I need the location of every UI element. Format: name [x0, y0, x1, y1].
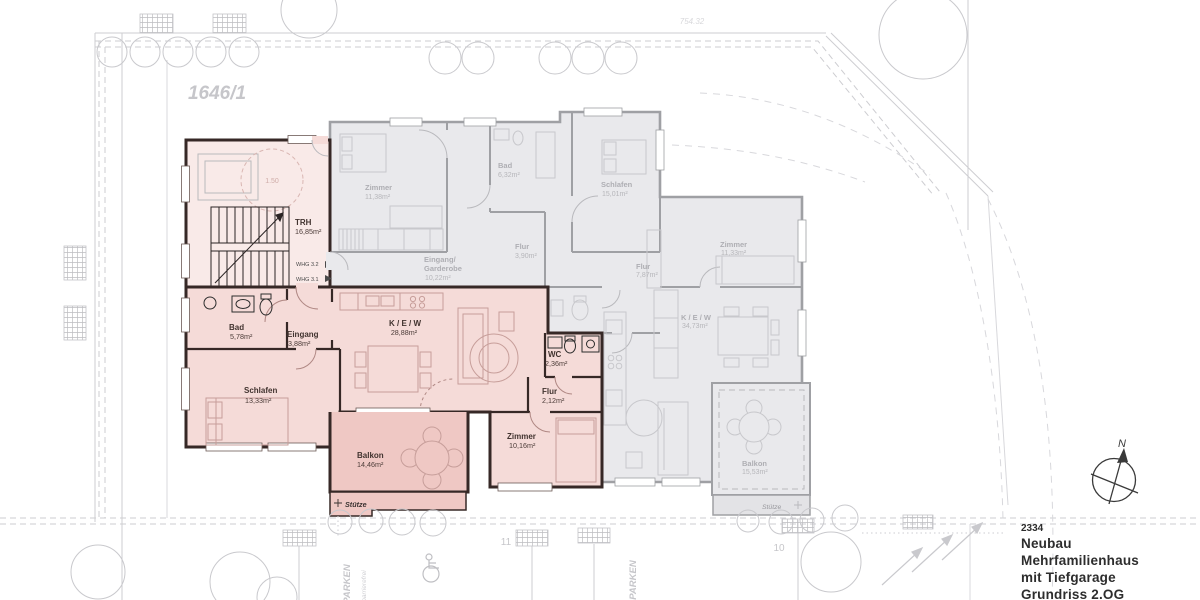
- svg-text:3,88m²: 3,88m²: [288, 339, 311, 348]
- ramp-arrows: [882, 523, 982, 585]
- svg-text:10,16m²: 10,16m²: [509, 441, 536, 450]
- room-label-zimmer-right: Zimmer: [720, 240, 747, 249]
- turning-circle-label: 1.50: [265, 178, 279, 185]
- title-block: 2334 Neubau Mehrfamilienhaus mit Tiefgar…: [1021, 523, 1139, 600]
- planter-box: [140, 14, 173, 33]
- room-label-bad-top: Bad: [498, 161, 513, 170]
- room-label-zimmer: Zimmer: [507, 432, 536, 441]
- room-label-eingang-top: Eingang/: [424, 255, 457, 264]
- svg-text:2,12m²: 2,12m²: [542, 396, 565, 405]
- title-line-1: Neubau: [1021, 536, 1072, 551]
- planter-box: [213, 14, 246, 33]
- support-label-pink: Stütze: [345, 500, 367, 509]
- title-line-3: mit Tiefgarage: [1021, 570, 1116, 585]
- pink-balcony: Stütze: [330, 412, 468, 538]
- room-label-flur-right: Flur: [636, 262, 650, 271]
- svg-text:11,38m²: 11,38m²: [365, 194, 391, 201]
- room-label-kew: K / E / W: [389, 319, 421, 328]
- room-label-wc: WC: [548, 350, 562, 359]
- plot-number: 1646/1: [188, 83, 246, 104]
- tree-icons-top: [97, 0, 967, 79]
- room-label-zimmer-top: Zimmer: [365, 183, 392, 192]
- room-label-schlafen: Schlafen: [244, 386, 277, 395]
- project-number: 2334: [1021, 523, 1044, 534]
- svg-text:3,90m²: 3,90m²: [515, 253, 537, 260]
- svg-text:28,88m²: 28,88m²: [391, 328, 418, 337]
- svg-text:6,32m²: 6,32m²: [498, 172, 520, 179]
- title-line-4: Grundriss 2.OG: [1021, 587, 1124, 600]
- room-label-trh: TRH: [295, 218, 312, 227]
- planter-box: [64, 306, 86, 340]
- svg-text:34,73m²: 34,73m²: [682, 323, 708, 330]
- svg-text:15,53m²: 15,53m²: [742, 469, 768, 476]
- room-label-balkon: Balkon: [357, 451, 384, 460]
- floor-plan-drawing: 1646/1 754.32 1: [0, 0, 1200, 600]
- door-label-whg31: WHG 3.1: [296, 277, 319, 283]
- svg-text:2,36m²: 2,36m²: [545, 359, 568, 368]
- svg-text:11,33m²: 11,33m²: [721, 250, 747, 257]
- room-label-flur-top: Flur: [515, 242, 529, 251]
- svg-text:13,33m²: 13,33m²: [245, 396, 272, 405]
- svg-text:16,85m²: 16,85m²: [295, 227, 322, 236]
- stall-number-10: 10: [773, 543, 785, 554]
- room-label-eingang: Eingang: [287, 330, 319, 339]
- stall-number-11: 11: [501, 537, 512, 548]
- svg-text:15,01m²: 15,01m²: [602, 191, 628, 198]
- tree-icons-bottom: [71, 505, 861, 600]
- wheelchair-icon: [423, 554, 439, 582]
- compass-north-label: N: [1118, 438, 1126, 450]
- door-label-whg32: WHG 3.2: [296, 262, 319, 268]
- parking-label-left: PARKEN: [342, 563, 353, 600]
- accessible-label: barrierefrei: [361, 570, 368, 600]
- title-line-2: Mehrfamilienhaus: [1021, 553, 1139, 568]
- room-label-kew-right: K / E / W: [681, 313, 712, 322]
- svg-text:14,46m²: 14,46m²: [357, 460, 384, 469]
- site-elevation-note: 754.32: [680, 17, 705, 26]
- compass-icon: N: [1091, 438, 1138, 504]
- room-label-balkon-right: Balkon: [742, 459, 767, 468]
- floor-plan-canvas: 1646/1 754.32 1: [0, 0, 1200, 600]
- planter-box: [64, 246, 86, 280]
- parking-label-right: PARKEN: [628, 559, 639, 600]
- room-label-bad: Bad: [229, 323, 244, 332]
- parking-area: 11 10 PARKEN barrierefrei PARKEN: [283, 515, 1005, 600]
- stairwell: 1.50 TRH 16,85m² WHG 3.2 WHG 3.1: [182, 136, 333, 288]
- svg-text:7,87m²: 7,87m²: [636, 272, 658, 279]
- svg-text:5,78m²: 5,78m²: [230, 332, 253, 341]
- room-label-flur: Flur: [542, 387, 557, 396]
- svg-text:Garderobe: Garderobe: [424, 264, 462, 273]
- svg-text:10,22m²: 10,22m²: [425, 275, 451, 282]
- room-label-schlafen-top: Schlafen: [601, 180, 633, 189]
- gray-balcony: Stütze: [712, 383, 810, 515]
